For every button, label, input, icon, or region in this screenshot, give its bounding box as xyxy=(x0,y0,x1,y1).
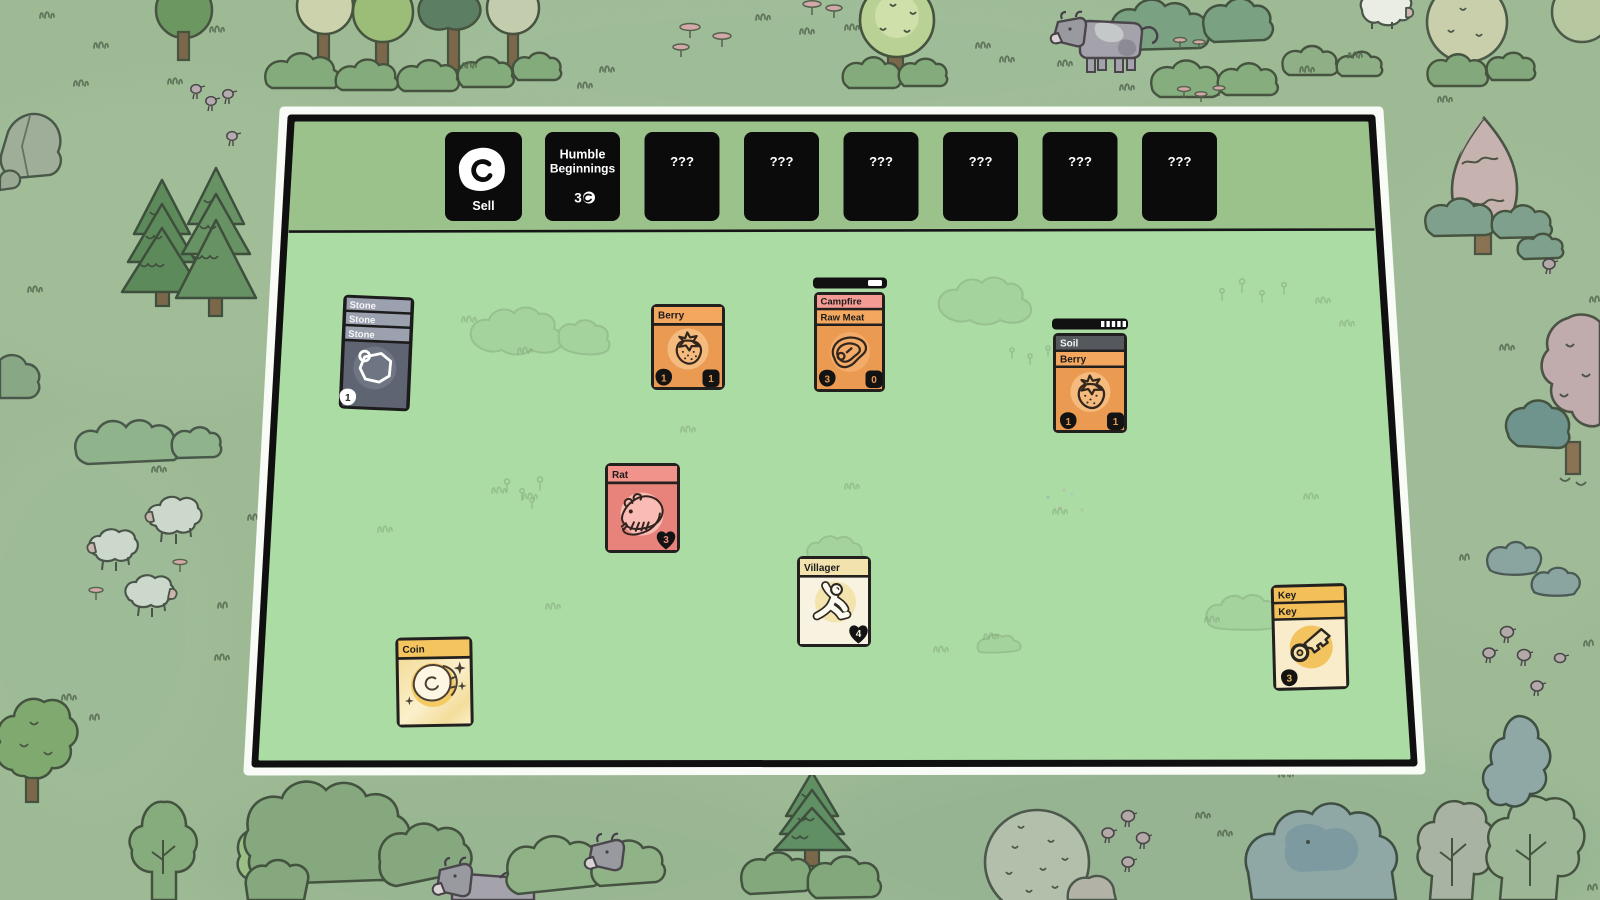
svg-text:0: 0 xyxy=(871,375,877,386)
svg-text:???: ??? xyxy=(1168,154,1192,169)
svg-text:???: ??? xyxy=(770,154,794,169)
svg-text:3: 3 xyxy=(574,191,582,206)
svg-text:1: 1 xyxy=(661,373,667,384)
svg-text:Key: Key xyxy=(1278,607,1297,618)
svg-text:Humble: Humble xyxy=(560,148,606,162)
svg-text:???: ??? xyxy=(869,154,893,169)
svg-text:???: ??? xyxy=(969,154,993,169)
svg-text:Stone: Stone xyxy=(348,329,375,341)
svg-text:Soil: Soil xyxy=(1060,338,1079,349)
svg-text:Campfire: Campfire xyxy=(821,297,862,308)
svg-text:1: 1 xyxy=(708,374,714,385)
svg-text:???: ??? xyxy=(670,154,694,169)
svg-text:Stone: Stone xyxy=(349,300,376,312)
svg-text:3: 3 xyxy=(663,535,669,546)
svg-text:3: 3 xyxy=(1286,673,1292,684)
svg-text:Key: Key xyxy=(1278,590,1297,601)
svg-text:1: 1 xyxy=(1066,417,1072,428)
svg-text:Rat: Rat xyxy=(612,470,629,481)
svg-text:Stone: Stone xyxy=(349,314,376,326)
svg-text:???: ??? xyxy=(1068,154,1092,169)
svg-text:Beginnings: Beginnings xyxy=(550,162,616,176)
svg-text:Raw Meat: Raw Meat xyxy=(821,312,866,323)
svg-text:Berry: Berry xyxy=(1060,354,1087,365)
svg-text:3: 3 xyxy=(825,374,831,385)
svg-text:Berry: Berry xyxy=(658,311,685,322)
svg-text:4: 4 xyxy=(856,629,862,640)
svg-text:Sell: Sell xyxy=(472,199,494,213)
svg-text:Villager: Villager xyxy=(804,563,840,574)
svg-text:1: 1 xyxy=(1113,417,1119,428)
svg-text:1: 1 xyxy=(345,393,351,404)
svg-text:Coin: Coin xyxy=(402,644,424,655)
